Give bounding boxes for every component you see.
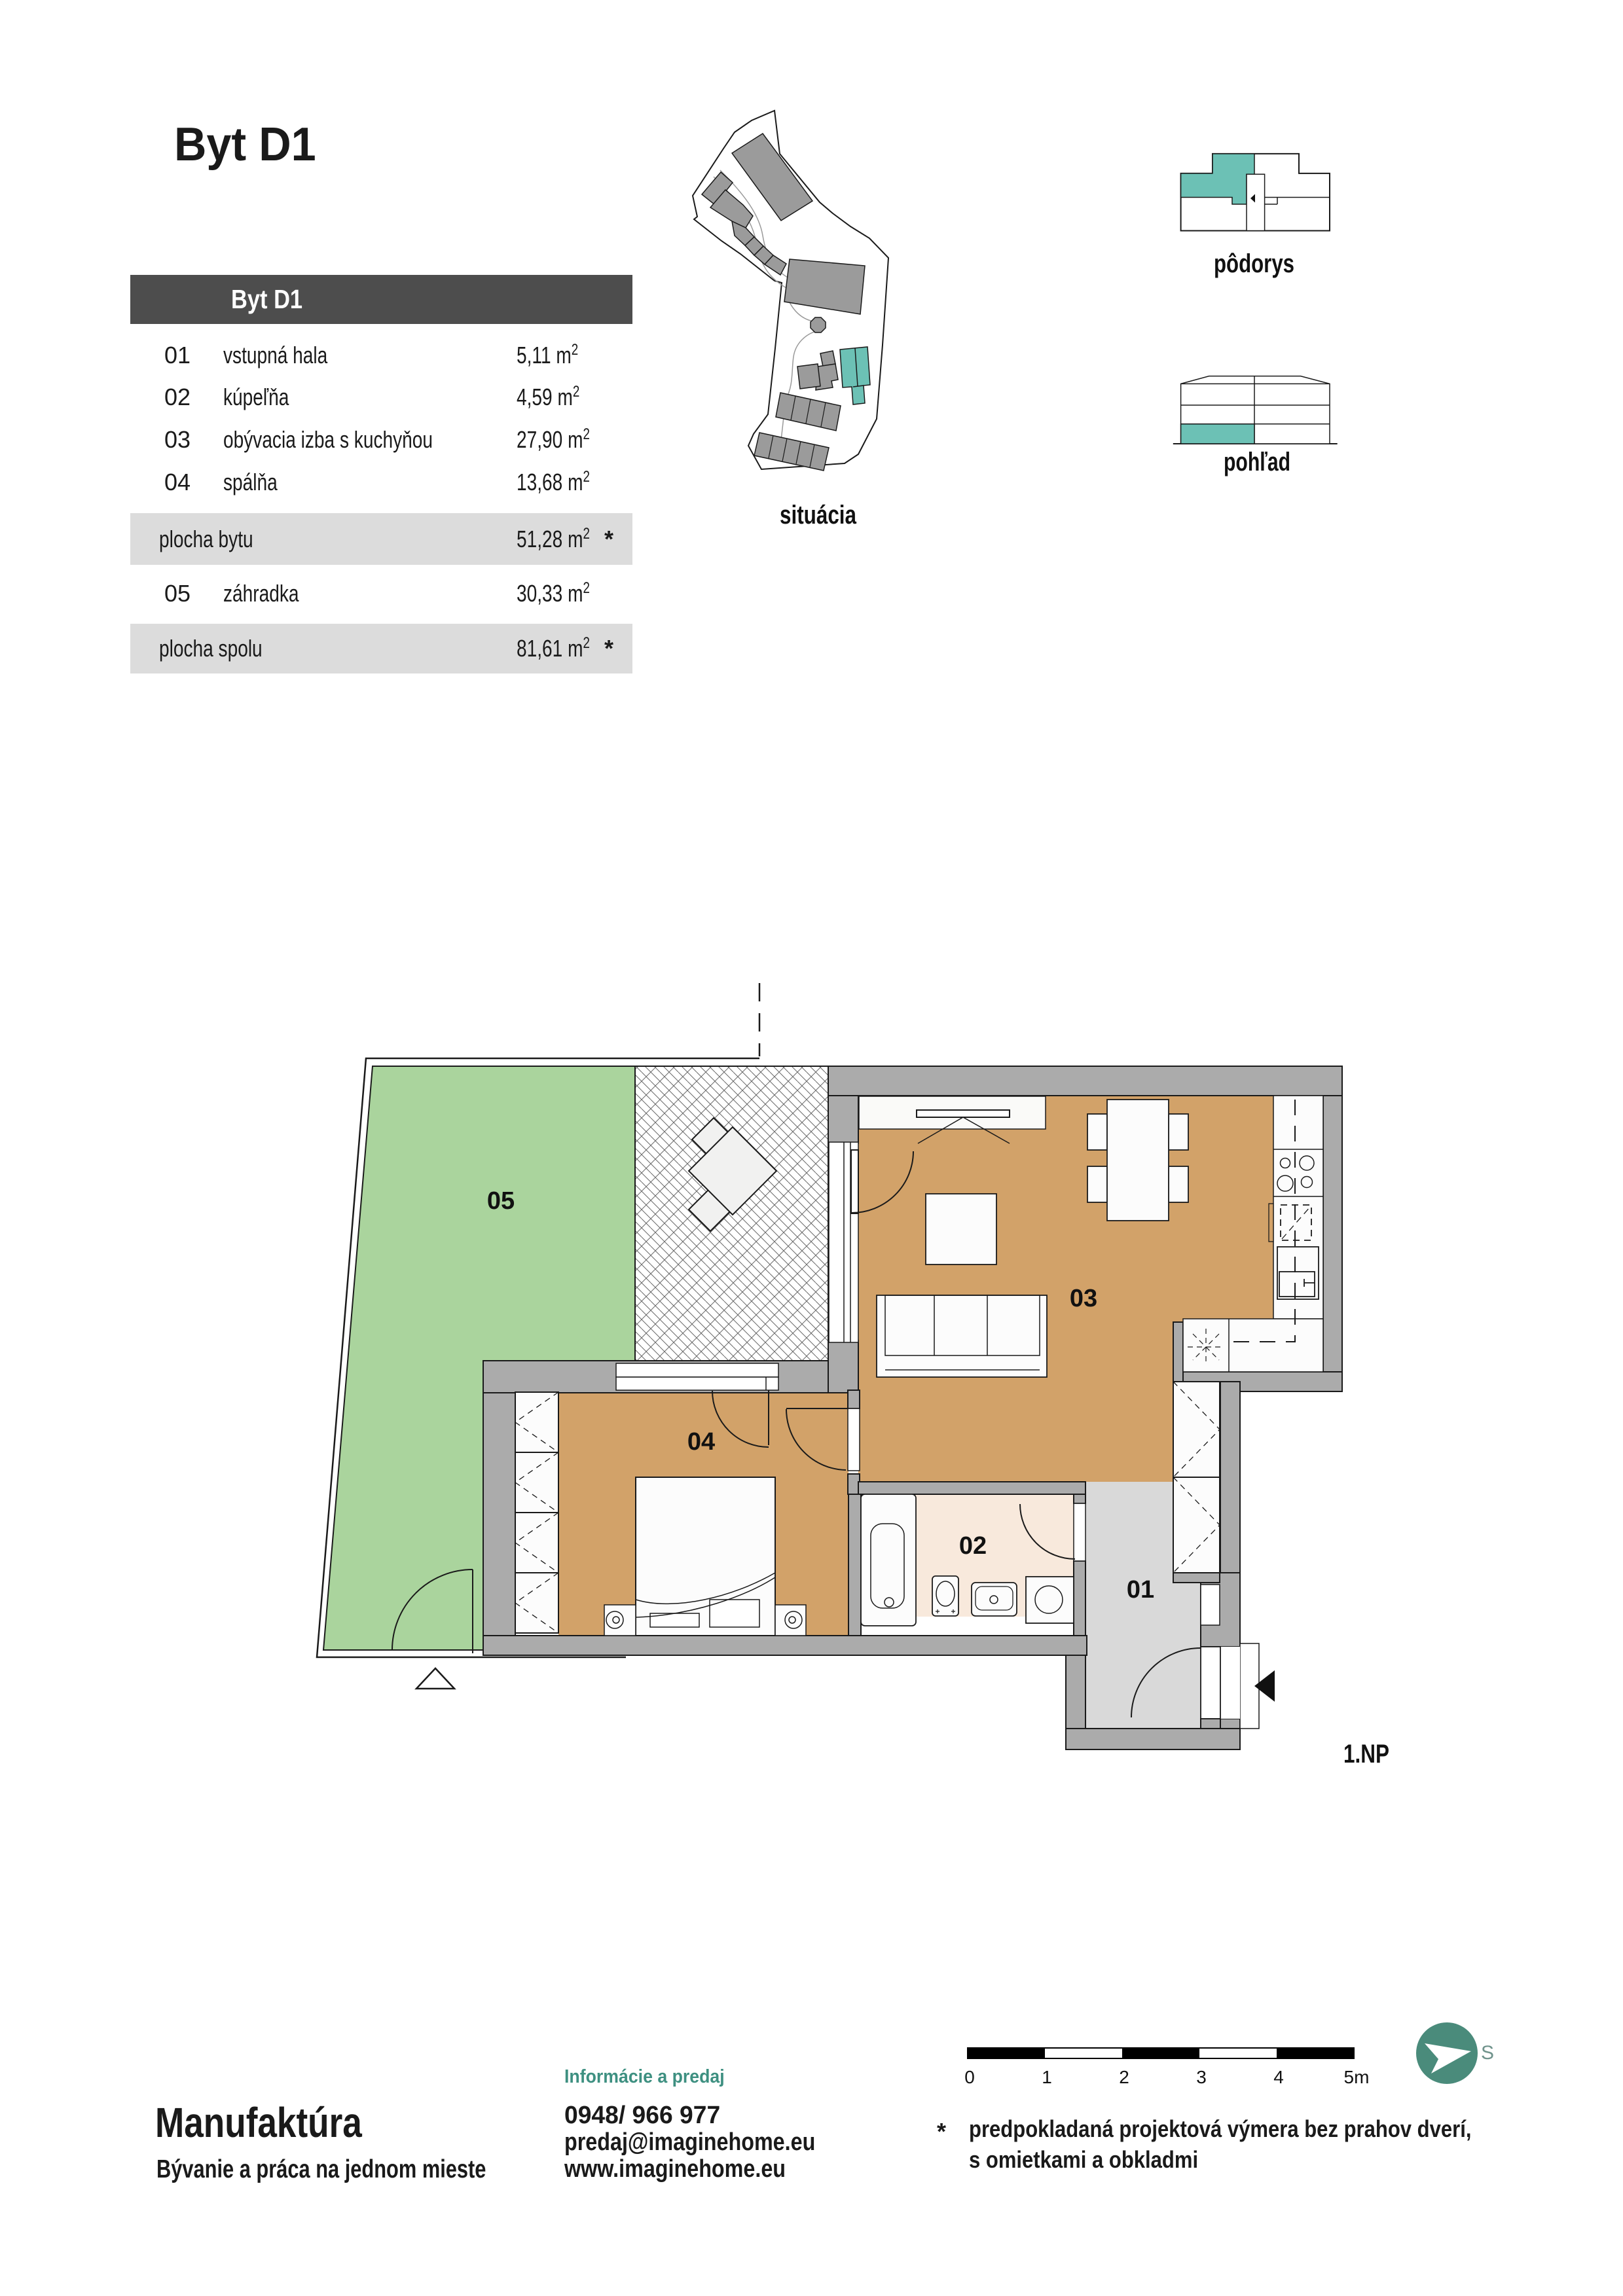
svg-text:4: 4 xyxy=(1273,2067,1284,2087)
svg-text:1.NP: 1.NP xyxy=(1343,1740,1389,1768)
svg-text:pôdorys: pôdorys xyxy=(1214,249,1294,278)
svg-text:1: 1 xyxy=(1042,2067,1052,2087)
svg-text:3: 3 xyxy=(1196,2067,1207,2087)
svg-text:situácia: situácia xyxy=(780,501,857,529)
svg-text:2: 2 xyxy=(1119,2067,1129,2087)
svg-text:05: 05 xyxy=(487,1187,515,1215)
svg-text:0: 0 xyxy=(964,2067,975,2087)
svg-text:pohľad: pohľad xyxy=(1224,448,1290,476)
svg-text:02: 02 xyxy=(959,1532,987,1560)
svg-text:03: 03 xyxy=(1070,1285,1097,1312)
svg-text:04: 04 xyxy=(687,1428,715,1456)
svg-text:01: 01 xyxy=(1127,1576,1154,1604)
svg-text:5m: 5m xyxy=(1344,2067,1370,2087)
svg-text:S: S xyxy=(1481,2042,1494,2064)
